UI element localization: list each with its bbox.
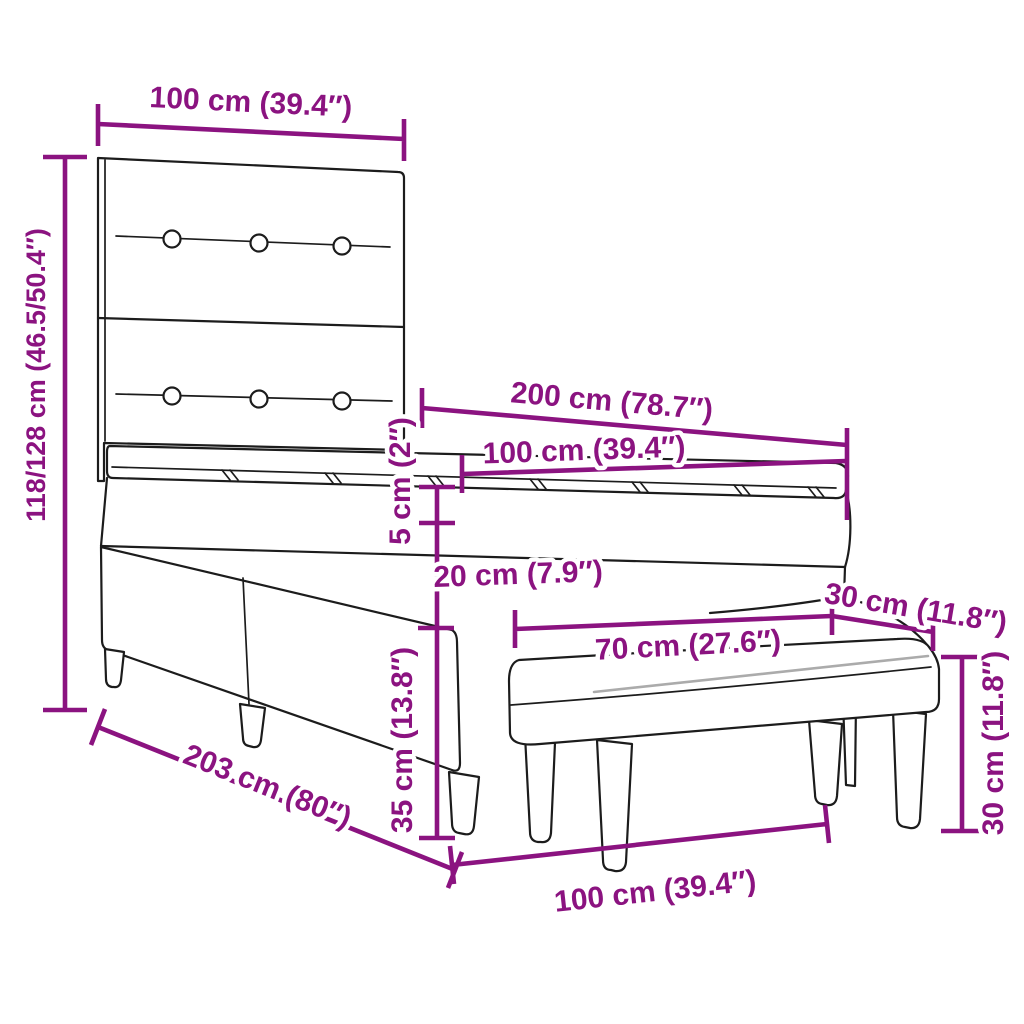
dim-headboard-width-label: 100 cm (39.4″) [149,81,353,124]
dim-topper-thickness-label: 5 cm (2″) [384,417,417,545]
dim-bench-height: 30 cm (11.8″) [941,651,1010,835]
dimension-diagram: 100 cm (39.4″) 118/128 cm (46.5/50.4″) 2… [0,0,1024,1024]
dim-bed-total-length-label: 203 cm (80″) [179,738,356,835]
bench-leg-left-front [597,740,632,871]
bench-leg-right-back [809,720,842,805]
bed-leg-middle [240,704,265,747]
bench-leg-right-front [893,710,926,828]
dim-bench-height-label: 30 cm (11.8″) [977,651,1010,835]
dim-bench-total-width-label: 100 cm (39.4″) [553,864,758,919]
dim-mattress-thickness-label: 20 cm (7.9″) [433,555,604,594]
mattress-left-edge [101,478,107,546]
base-bottom-edge-fragment [710,597,840,613]
bed-leg-left [105,649,124,687]
dimension-line [450,805,829,884]
dim-headboard-width: 100 cm (39.4″) [98,81,404,161]
bed-leg-front [449,772,479,834]
dim-bench-total-width: 100 cm (39.4″) [450,805,829,919]
dim-overall-height-label: 118/128 cm (46.5/50.4″) [21,228,51,522]
dim-overall-height: 118/128 cm (46.5/50.4″) [21,157,87,710]
dim-base-height-label: 35 cm (13.8″) [386,647,419,833]
diagram-canvas: 100 cm (39.4″) 118/128 cm (46.5/50.4″) 2… [0,0,1024,1024]
